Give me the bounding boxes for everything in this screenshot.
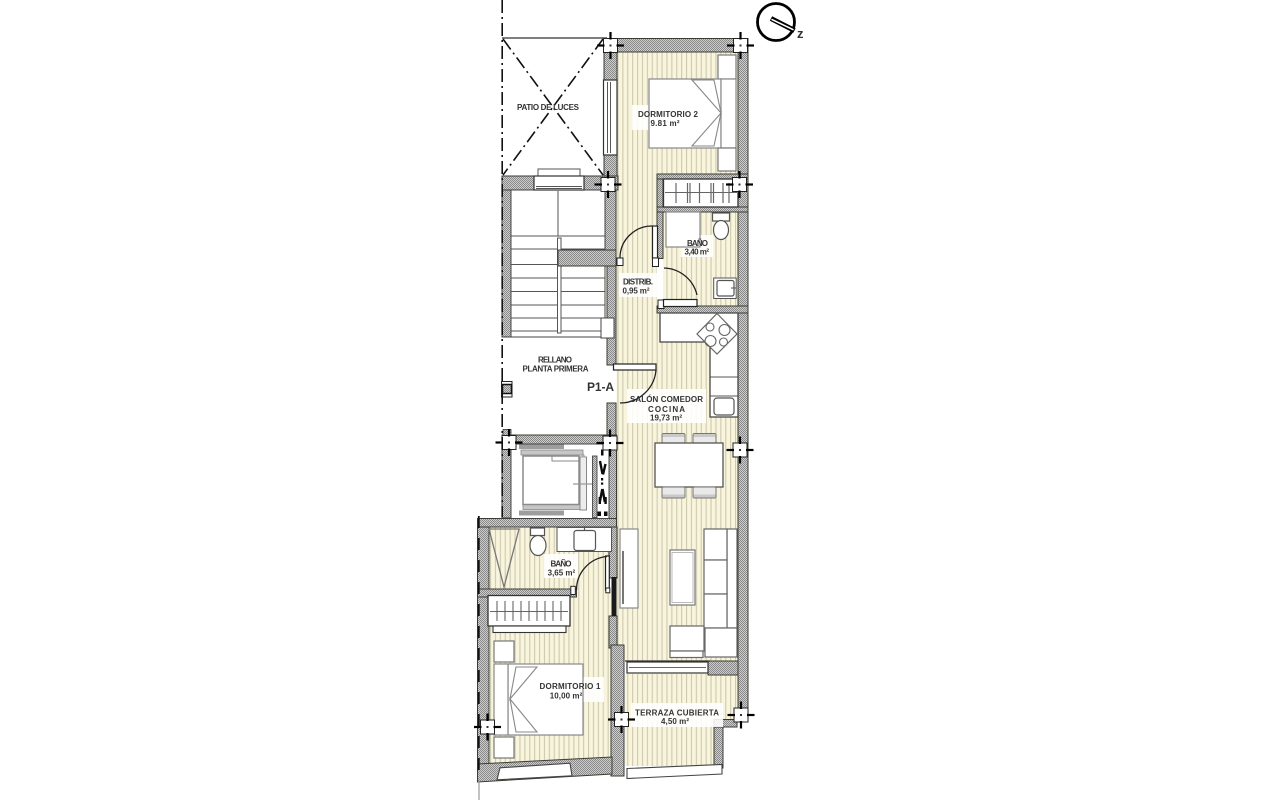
svg-text:DISTRIB.: DISTRIB. bbox=[623, 278, 653, 287]
svg-text:PLANTA PRIMERA: PLANTA PRIMERA bbox=[523, 365, 589, 374]
svg-text:10,00 m²: 10,00 m² bbox=[550, 692, 583, 701]
svg-text:0,95 m²: 0,95 m² bbox=[623, 287, 650, 296]
svg-text:DORMITORIO 1: DORMITORIO 1 bbox=[540, 682, 602, 691]
svg-text:RELLANO: RELLANO bbox=[538, 356, 572, 365]
svg-text:3,65 m²: 3,65 m² bbox=[548, 569, 576, 578]
svg-text:P1-A: P1-A bbox=[587, 380, 614, 394]
svg-text:DORMITORIO 2: DORMITORIO 2 bbox=[638, 110, 699, 119]
svg-text:BAÑO: BAÑO bbox=[551, 560, 572, 569]
svg-text:19,73 m²: 19,73 m² bbox=[650, 414, 682, 423]
svg-text:9.81 m²: 9.81 m² bbox=[651, 119, 680, 128]
svg-text:SALÓN COMEDOR: SALÓN COMEDOR bbox=[630, 395, 703, 404]
svg-text:PATIO DE LUCES: PATIO DE LUCES bbox=[517, 103, 580, 112]
svg-text:3,40 m²: 3,40 m² bbox=[685, 248, 710, 257]
svg-text:4,50 m²: 4,50 m² bbox=[661, 717, 689, 726]
svg-text:z: z bbox=[797, 26, 804, 41]
